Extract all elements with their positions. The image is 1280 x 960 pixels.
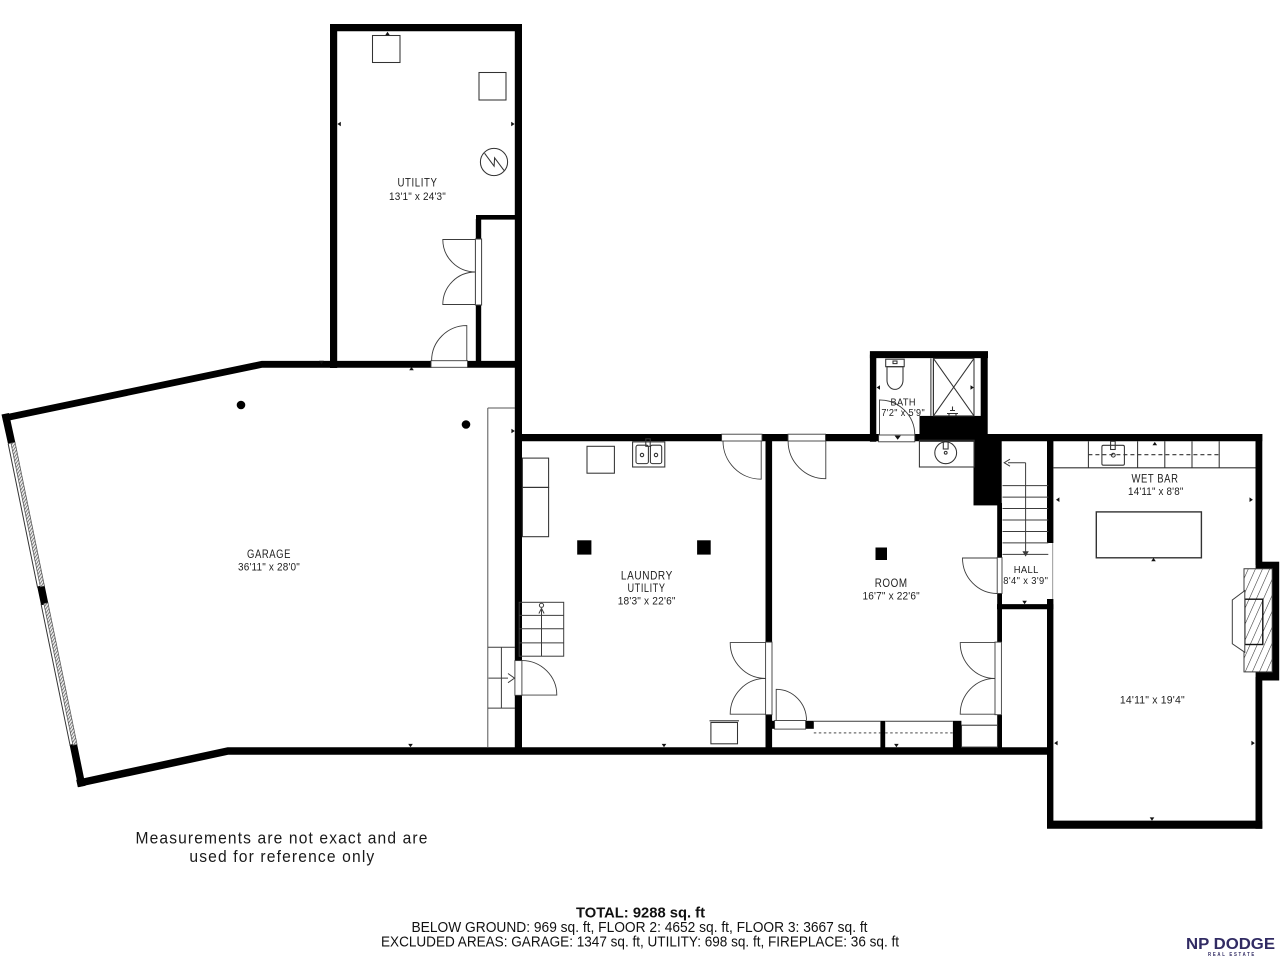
svg-text:18'3" x 22'6": 18'3" x 22'6"	[618, 596, 676, 608]
svg-text:NP DODGE: NP DODGE	[1186, 936, 1275, 953]
svg-text:BATH: BATH	[891, 398, 916, 409]
svg-text:ROOM: ROOM	[875, 578, 908, 590]
svg-text:GARAGE: GARAGE	[247, 549, 291, 561]
svg-text:EXCLUDED AREAS: GARAGE: 1347 s: EXCLUDED AREAS: GARAGE: 1347 sq. ft, UTI…	[381, 933, 900, 950]
svg-text:HALL: HALL	[1014, 565, 1039, 576]
svg-text:UTILITY: UTILITY	[398, 178, 438, 190]
svg-text:used for reference only: used for reference only	[189, 848, 375, 866]
svg-text:UTILITY: UTILITY	[628, 583, 666, 595]
svg-text:14'11" x 19'4": 14'11" x 19'4"	[1120, 695, 1185, 707]
svg-text:13'1" x 24'3": 13'1" x 24'3"	[389, 191, 446, 203]
svg-text:REAL ESTATE: REAL ESTATE	[1208, 952, 1256, 958]
svg-text:14'11" x 8'8": 14'11" x 8'8"	[1128, 486, 1184, 498]
svg-text:8'4" x 3'9": 8'4" x 3'9"	[1003, 576, 1048, 587]
svg-text:Measurements are not exact and: Measurements are not exact and are	[136, 830, 429, 848]
svg-text:36'11" x 28'0": 36'11" x 28'0"	[238, 562, 300, 574]
svg-text:WET BAR: WET BAR	[1132, 474, 1179, 486]
svg-text:LAUNDRY: LAUNDRY	[621, 571, 673, 583]
svg-text:7'2" x 5'9": 7'2" x 5'9"	[881, 408, 925, 419]
svg-text:16'7" x 22'6": 16'7" x 22'6"	[862, 591, 920, 603]
